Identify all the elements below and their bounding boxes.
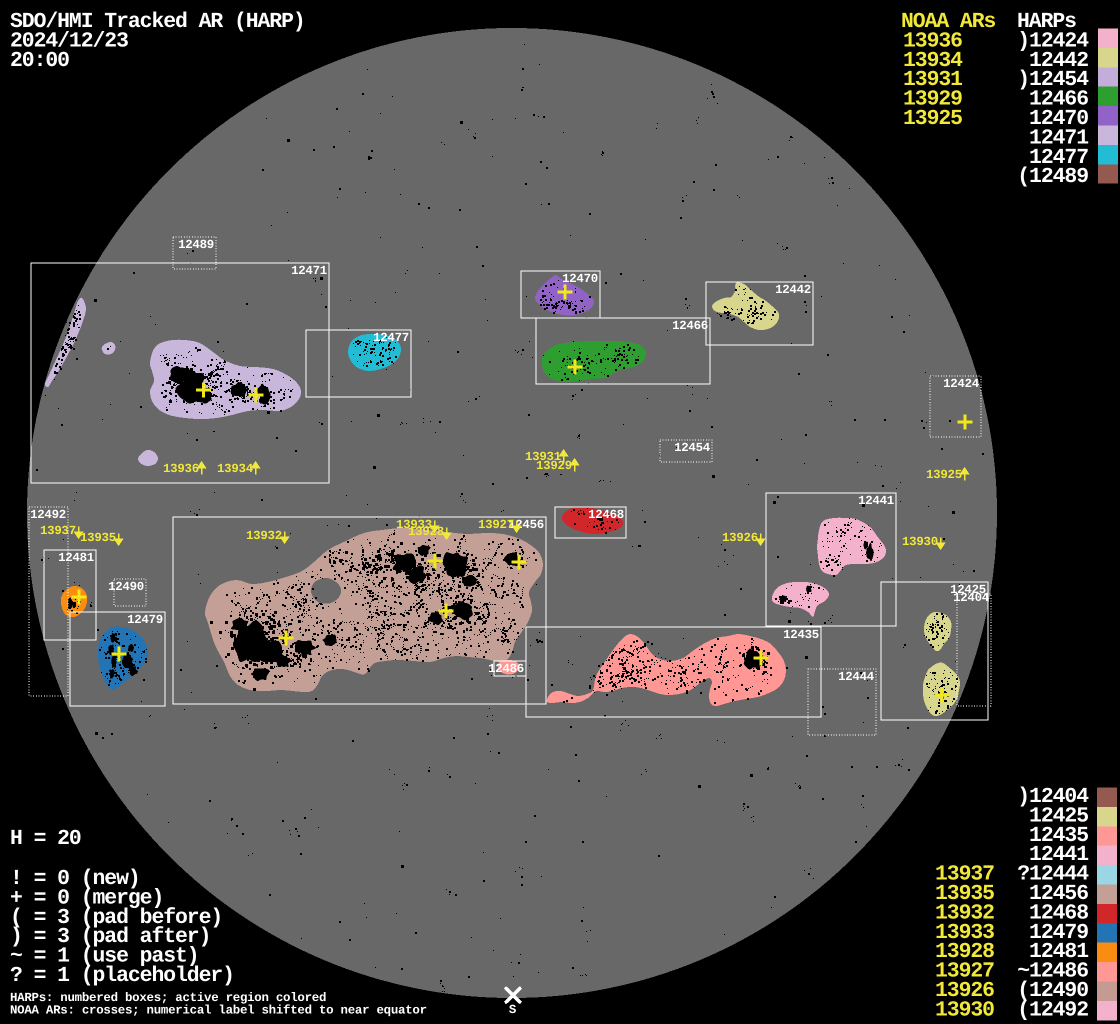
svg-text:12404: 12404 xyxy=(953,591,990,605)
svg-text:(12489: (12489 xyxy=(1017,165,1088,189)
svg-text:13936: 13936 xyxy=(163,462,199,476)
svg-text:12490: 12490 xyxy=(108,580,144,594)
svg-text:12477: 12477 xyxy=(373,331,409,345)
svg-text:NOAA ARs: crosses; numerical l: NOAA ARs: crosses; numerical label shift… xyxy=(10,1004,427,1018)
svg-text:13932: 13932 xyxy=(246,529,282,543)
svg-text:13925: 13925 xyxy=(903,107,962,131)
svg-text:13937: 13937 xyxy=(40,524,76,538)
svg-text:? = 1 (placeholder): ? = 1 (placeholder) xyxy=(10,964,234,988)
svg-text:12481: 12481 xyxy=(58,551,94,565)
svg-text:13927: 13927 xyxy=(478,518,514,532)
svg-text:12470: 12470 xyxy=(562,272,598,286)
svg-text:12479: 12479 xyxy=(127,613,163,627)
svg-text:13930: 13930 xyxy=(935,998,994,1022)
svg-text:(12492: (12492 xyxy=(1017,998,1088,1022)
svg-text:12486: 12486 xyxy=(488,662,524,676)
svg-text:12454: 12454 xyxy=(674,441,711,455)
svg-text:12489: 12489 xyxy=(178,238,214,252)
svg-text:13929: 13929 xyxy=(536,459,572,473)
svg-text:12442: 12442 xyxy=(775,283,811,297)
svg-text:12441: 12441 xyxy=(858,494,894,508)
svg-text:13934: 13934 xyxy=(217,462,254,476)
svg-text:13925: 13925 xyxy=(926,468,962,482)
svg-text:13935: 13935 xyxy=(80,531,116,545)
svg-text:12471: 12471 xyxy=(291,264,327,278)
svg-text:H = 20: H = 20 xyxy=(10,827,81,851)
svg-text:12468: 12468 xyxy=(588,508,624,522)
svg-text:12435: 12435 xyxy=(783,628,819,642)
svg-text:S: S xyxy=(509,1003,517,1017)
svg-text:12444: 12444 xyxy=(838,670,875,684)
svg-text:20:00: 20:00 xyxy=(10,49,69,73)
svg-text:13930: 13930 xyxy=(902,535,938,549)
svg-text:12424: 12424 xyxy=(943,377,980,391)
svg-text:13928: 13928 xyxy=(408,525,444,539)
svg-text:12466: 12466 xyxy=(672,319,708,333)
svg-text:12492: 12492 xyxy=(30,508,66,522)
svg-text:13926: 13926 xyxy=(722,531,758,545)
